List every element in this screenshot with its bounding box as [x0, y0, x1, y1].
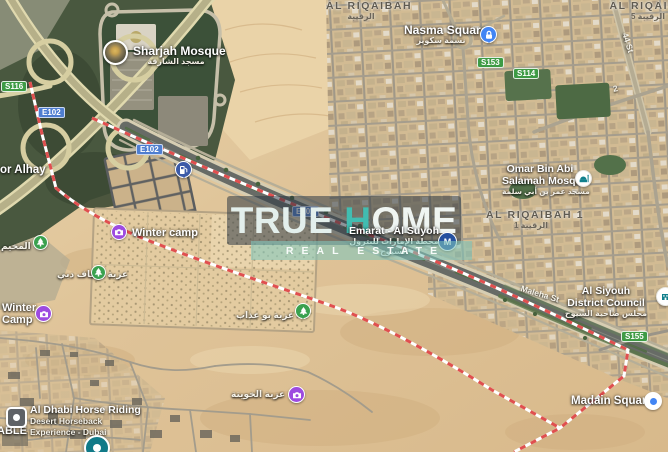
satellite-map[interactable]: S116 E102 E102 E102 S153 S114 S155 Maleh… [0, 0, 668, 452]
fuel-pump-icon[interactable] [175, 161, 192, 178]
poi-ezbat-khuwaitah[interactable]: عزبة الخويتة [231, 389, 285, 400]
tree-icon[interactable] [295, 303, 311, 319]
poi-nasma-square[interactable]: Nasma Square نسمة سكوير [404, 24, 478, 46]
poi-or-alhay[interactable]: or Alhay [0, 164, 46, 176]
mosque-icon[interactable] [575, 170, 592, 187]
watermark-tagline-bar: REAL ESTATE [251, 241, 472, 260]
poi-winter-camp-2[interactable]: Winter Camp [2, 302, 36, 326]
route-shield-e102: E102 [136, 144, 163, 155]
poi-ezbat-bu[interactable]: عزبة بو عذاب [236, 310, 294, 321]
route-shield-s114: S114 [513, 68, 539, 79]
camera-icon[interactable] [111, 224, 127, 240]
route-shield-s153: S153 [477, 57, 504, 68]
sharjah-mosque-photo-icon[interactable] [103, 40, 128, 65]
blue-dot-marker-icon[interactable] [644, 392, 662, 410]
camera-icon[interactable] [288, 386, 305, 403]
area-label-al-riqaibah-1: AL RIQAIBAH 1 الرقيبة 1 [486, 210, 576, 231]
tree-icon[interactable] [33, 235, 48, 250]
camera-icon[interactable] [35, 305, 52, 322]
poi-winter-camp[interactable]: Winter camp [132, 227, 198, 239]
poi-horse-riding[interactable]: Al Dhabi Horse Riding Desert Horseback E… [30, 404, 141, 437]
poi-omar-mosque[interactable]: Omar Bin Abi Salamah Mosque مسجد عمر بن … [502, 163, 578, 197]
area-label-al-riqaibah-5: AL RIQAIBA 5 الرقيبة [608, 1, 668, 22]
poi-al-siyouh-council[interactable]: Al Siyouh District Council مجلس ضاحية ال… [560, 285, 652, 319]
lock-icon[interactable] [480, 26, 497, 43]
stable-icon[interactable] [6, 407, 27, 428]
poi-camp-ar[interactable]: المخيم [1, 241, 31, 252]
watermark-tagline: REAL ESTATE [278, 245, 445, 257]
route-shield-s155: S155 [621, 331, 648, 342]
building-icon[interactable] [656, 287, 668, 306]
poi-madain-square[interactable]: Madain Square [571, 395, 653, 407]
area-label-al-riqaibah: AL RIQAIBAH الرقيبة [326, 1, 396, 22]
route-shield-e102: E102 [38, 107, 65, 118]
route-shield-s116: S116 [1, 81, 27, 92]
tree-icon[interactable] [91, 265, 106, 280]
poi-sharjah-mosque[interactable]: Sharjah Mosque مسجد الشارقة [133, 45, 219, 67]
